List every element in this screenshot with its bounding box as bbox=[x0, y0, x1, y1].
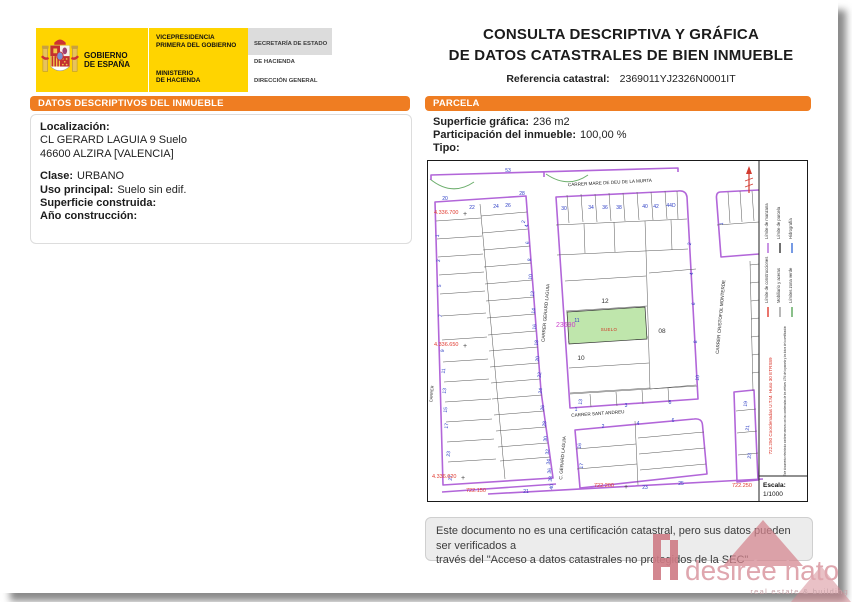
title-line2: DE DATOS CATASTRALES DE BIEN INMUEBLE bbox=[420, 45, 822, 66]
map-label: CARRER CRISTOFOL MONTERDE bbox=[715, 280, 726, 354]
map-label: 24 bbox=[493, 204, 499, 210]
map-label: 4 bbox=[689, 272, 695, 276]
map-label: 2 bbox=[521, 220, 527, 224]
referencia-catastral: Referencia catastral:2369011YJ2326N0001I… bbox=[420, 73, 822, 85]
map-label: 17 bbox=[444, 423, 451, 429]
referencia-value: 2369011YJ2326N0001IT bbox=[620, 73, 736, 85]
map-label: C. GERARD LAGUIA bbox=[558, 435, 567, 480]
map-legend: Límite de manzanaLímite de construccione… bbox=[764, 203, 793, 317]
map-label: 23690 bbox=[556, 322, 576, 329]
localizacion-label: Localización: bbox=[40, 121, 400, 134]
map-label: 38 bbox=[548, 476, 555, 482]
parcela-content: Superficie gráfica:236 m2 Participación … bbox=[433, 116, 803, 156]
map-label: 24 bbox=[538, 388, 545, 394]
map-label: 1 bbox=[575, 407, 578, 413]
map-label: 26 bbox=[540, 405, 547, 411]
map-label: 15 bbox=[443, 407, 450, 413]
map-label: 38 bbox=[616, 205, 622, 211]
map-label: 36 bbox=[602, 205, 608, 211]
map-label: 36 bbox=[547, 468, 554, 474]
map-label: 2 bbox=[687, 242, 693, 246]
map-label: 4.336.650 bbox=[434, 342, 458, 348]
map-label: 13 bbox=[578, 399, 585, 405]
government-logo: GOBIERNO DE ESPAÑA VICEPRESIDENCIA PRIME… bbox=[36, 28, 332, 92]
map-label: 20 bbox=[442, 196, 448, 202]
map-label: 23 bbox=[642, 485, 648, 491]
map-label: CARRER GERARD LAGUIA bbox=[540, 283, 550, 343]
map-label: 30 bbox=[543, 436, 550, 442]
direccion-line1: CL GERARD LAGUIA 9 Suelo bbox=[40, 134, 400, 147]
ministerio-box: VICEPRESIDENCIA PRIMERA DEL GOBIERNO MIN… bbox=[149, 28, 248, 92]
datos-section-header: DATOS DESCRIPTIVOS DEL INMUEBLE bbox=[30, 96, 410, 111]
map-label: 16 bbox=[577, 443, 584, 449]
brand-name: desirée hato bbox=[685, 555, 839, 586]
map-label: 9 bbox=[440, 349, 446, 353]
map-label: 16 bbox=[532, 324, 539, 330]
map-label: 08 bbox=[658, 328, 666, 335]
parcela-section-header: PARCELA bbox=[425, 96, 811, 111]
map-label: CARRER bbox=[428, 385, 434, 402]
map-label: 30 bbox=[561, 206, 567, 212]
uso-line: Uso principal:Suelo sin edif. bbox=[40, 184, 400, 197]
superficie-line: Superficie construida: bbox=[40, 197, 400, 210]
map-label: 722.250 bbox=[732, 483, 752, 489]
cadastral-map: Límite de manzanaLímite de construccione… bbox=[427, 160, 808, 502]
map-label: 6 bbox=[672, 418, 675, 424]
map-label: 4 bbox=[524, 224, 530, 228]
map-label: 20 bbox=[535, 356, 542, 362]
map-label: 4 bbox=[637, 421, 640, 427]
map-label: 26 bbox=[505, 203, 511, 209]
scale-label: Escala: bbox=[763, 482, 786, 489]
clase-line: Clase:URBANO bbox=[40, 170, 400, 183]
map-label: 44D bbox=[666, 203, 676, 209]
map-label: 10 bbox=[695, 375, 702, 381]
brand-monogram-icon bbox=[653, 534, 678, 580]
map-label: 18 bbox=[534, 340, 541, 346]
map-label: 722.150 bbox=[466, 488, 486, 494]
map-label: 10 bbox=[528, 274, 535, 280]
vicepresidencia-label: VICEPRESIDENCIA PRIMERA DEL GOBIERNO bbox=[156, 34, 248, 49]
map-label: 32 bbox=[545, 449, 552, 455]
map-label: SUELO bbox=[601, 327, 618, 332]
map-label: 8 bbox=[527, 258, 533, 262]
electronic-doc-note: Este documento electrónico contiene anex… bbox=[783, 326, 787, 476]
legend-item: Hidrografía bbox=[788, 218, 793, 239]
map-label: 3 bbox=[436, 259, 442, 263]
map-label: 2 bbox=[602, 424, 605, 430]
map-label: 4.336.700 bbox=[434, 210, 458, 216]
cadastral-document: GOBIERNO DE ESPAÑA VICEPRESIDENCIA PRIME… bbox=[0, 0, 852, 602]
map-label: 21 bbox=[745, 425, 752, 431]
legend-item: Límite de parcela bbox=[776, 206, 781, 239]
map-label: 34 bbox=[588, 205, 594, 211]
map-label: + bbox=[463, 343, 467, 350]
map-label: 14 bbox=[531, 308, 538, 314]
map-label: 6 bbox=[691, 302, 697, 306]
map-label: 40 bbox=[549, 484, 556, 490]
map-label: 28 bbox=[519, 191, 525, 197]
map-label: 10 bbox=[577, 355, 585, 362]
subject-parcel bbox=[567, 307, 647, 344]
map-label: 23 bbox=[446, 451, 453, 457]
map-label: 13 bbox=[442, 388, 449, 394]
coat-of-arms-icon bbox=[41, 34, 79, 87]
utm-note: 722.250 Coordenadas U.T.M. Huso 30 ETRS8… bbox=[768, 357, 773, 454]
legend-item: Límite de construcciones bbox=[764, 257, 769, 303]
superficie-grafica-line: Superficie gráfica:236 m2 bbox=[433, 116, 803, 129]
map-label: 34 bbox=[546, 459, 553, 465]
tipo-line: Tipo: bbox=[433, 142, 803, 155]
ministerio-label: MINISTERIO DE HACIENDA bbox=[156, 70, 248, 85]
map-label: 21 bbox=[523, 489, 529, 495]
map-label: 11 bbox=[441, 368, 448, 374]
map-svg: Límite de manzanaLímite de construccione… bbox=[428, 161, 807, 501]
map-label: 1 bbox=[719, 222, 725, 226]
map-label: + bbox=[463, 211, 467, 218]
secretaria-box: SECRETARÍA DE ESTADO DE HACIENDA DIRECCI… bbox=[248, 28, 332, 92]
map-label: 7 bbox=[438, 314, 444, 318]
map-label: 5 bbox=[437, 284, 443, 288]
map-label: + bbox=[461, 475, 465, 482]
map-label: 8 bbox=[693, 340, 699, 344]
green-zone-lines bbox=[430, 174, 588, 189]
brand-logo: desirée hato real estate & building bbox=[645, 514, 852, 602]
brand-watermark: desirée hato real estate & building bbox=[645, 514, 852, 602]
map-label: 5 bbox=[669, 400, 672, 406]
map-label: 23 bbox=[747, 453, 754, 459]
map-label: 12 bbox=[530, 291, 537, 297]
map-label: 53 bbox=[505, 168, 511, 174]
legend-item: Límite de manzana bbox=[764, 203, 769, 239]
map-label: 1 bbox=[435, 234, 441, 238]
direccion-line2: 46600 ALZIRA [VALENCIA] bbox=[40, 148, 400, 161]
map-label: CARRER SANT ANDREU bbox=[571, 409, 624, 418]
gobierno-label: GOBIERNO DE ESPAÑA bbox=[84, 51, 130, 69]
map-label: 22 bbox=[537, 372, 544, 378]
map-label: 42 bbox=[653, 204, 659, 210]
title-line1: CONSULTA DESCRIPTIVA Y GRÁFICA bbox=[420, 24, 822, 45]
map-label: 722.200 bbox=[594, 483, 614, 489]
map-label: 28 bbox=[542, 421, 549, 427]
gobierno-box: GOBIERNO DE ESPAÑA bbox=[36, 28, 148, 92]
map-label: 40 bbox=[642, 204, 648, 210]
map-label: 4.336.620 bbox=[432, 474, 456, 480]
map-label: 25 bbox=[678, 481, 684, 487]
map-label: + bbox=[624, 484, 628, 491]
referencia-label: Referencia catastral: bbox=[506, 73, 609, 85]
map-label: 3 bbox=[625, 403, 628, 409]
document-title: CONSULTA DESCRIPTIVA Y GRÁFICA DE DATOS … bbox=[420, 24, 822, 85]
map-label: 19 bbox=[743, 401, 750, 407]
legend-item: Límites zona verde bbox=[788, 267, 793, 303]
brand-tagline: real estate & building bbox=[750, 587, 849, 596]
datos-content: Localización: CL GERARD LAGUIA 9 Suelo 4… bbox=[40, 121, 400, 224]
participacion-line: Participación del inmueble:100,00 % bbox=[433, 129, 803, 142]
north-arrow-icon bbox=[745, 166, 753, 193]
map-label: 22 bbox=[469, 205, 475, 211]
secretaria-gray-box: SECRETARÍA DE ESTADO DE HACIENDA bbox=[248, 28, 332, 55]
legend-item: Mobiliario y aceras bbox=[776, 268, 781, 303]
map-label: 17 bbox=[579, 463, 586, 469]
scale-value: 1/1000 bbox=[763, 491, 783, 498]
map-label: 12 bbox=[601, 298, 609, 305]
anio-line: Año construcción: bbox=[40, 210, 400, 223]
